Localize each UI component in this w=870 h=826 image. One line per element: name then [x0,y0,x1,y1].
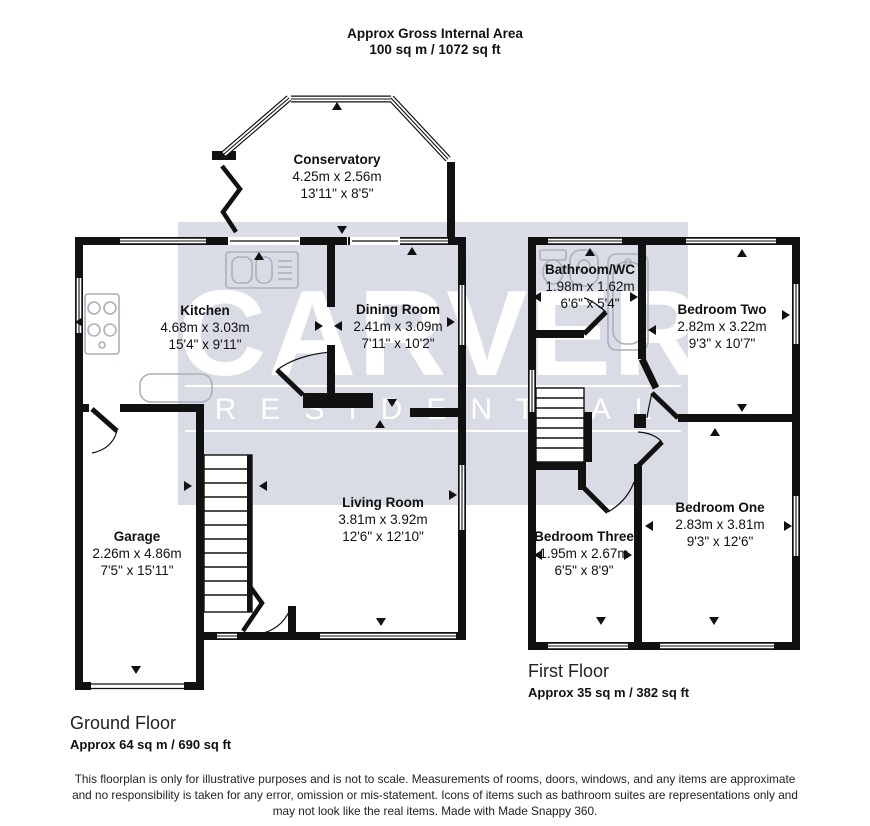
ground-stairs [204,455,252,612]
floorplan-page: Approx Gross Internal Area 100 sq m / 10… [0,0,870,826]
disclaimer-line-1: This floorplan is only for illustrative … [0,772,870,786]
room-imperial: 15'4" x 9'11" [160,336,249,353]
room-name: Conservatory [292,151,381,168]
room-name: Living Room [338,494,427,511]
room-metric: 4.25m x 2.56m [292,168,381,185]
ground-floor-title: Ground Floor [70,713,176,734]
room-label-conservatory: Conservatory 4.25m x 2.56m 13'11" x 8'5" [292,151,381,202]
room-label-bedroom-two: Bedroom Two 2.82m x 3.22m 9'3" x 10'7" [677,301,766,352]
room-metric: 4.68m x 3.03m [160,319,249,336]
room-label-bedroom-three: Bedroom Three 1.95m x 2.67m 6'5" x 8'9" [532,528,636,579]
room-label-kitchen: Kitchen 4.68m x 3.03m 15'4" x 9'11" [160,302,249,353]
room-metric: 2.41m x 3.09m [353,318,442,335]
disclaimer-line-2: and no responsibility is taken for any e… [0,788,870,802]
room-imperial: 9'3" x 12'6" [675,533,764,550]
room-name: Kitchen [160,302,249,319]
room-name: Dining Room [353,301,442,318]
first-floor-title: First Floor [528,661,609,682]
first-floor-area: Approx 35 sq m / 382 sq ft [528,685,689,700]
windows [79,98,796,689]
room-label-dining-room: Dining Room 2.41m x 3.09m 7'11" x 10'2" [353,301,442,352]
room-imperial: 12'6" x 12'10" [338,528,427,545]
floorplan-drawing [0,0,870,826]
room-imperial: 7'5" x 15'11" [92,562,181,579]
ground-floor-area: Approx 64 sq m / 690 sq ft [70,737,231,752]
room-metric: 1.95m x 2.67m [532,545,636,562]
ground-top-openings [228,237,400,245]
room-imperial: 13'11" x 8'5" [292,185,381,202]
room-label-garage: Garage 2.26m x 4.86m 7'5" x 15'11" [92,528,181,579]
room-imperial: 6'5" x 8'9" [532,562,636,579]
disclaimer-line-3: may not look like the real items. Made w… [0,804,870,818]
room-imperial: 9'3" x 10'7" [677,335,766,352]
room-metric: 1.98m x 1.62m [545,278,635,295]
room-label-bathroom-wc: Bathroom/WC 1.98m x 1.62m 6'6" x 5'4" [545,261,635,312]
room-label-living-room: Living Room 3.81m x 3.92m 12'6" x 12'10" [338,494,427,545]
room-metric: 2.83m x 3.81m [675,516,764,533]
room-name: Bathroom/WC [545,261,635,278]
room-metric: 3.81m x 3.92m [338,511,427,528]
room-name: Bedroom One [675,499,764,516]
room-imperial: 6'6" x 5'4" [545,295,635,312]
room-metric: 2.26m x 4.86m [92,545,181,562]
room-name: Bedroom Three [532,528,636,545]
first-floor-stairs [536,388,592,462]
room-name: Bedroom Two [677,301,766,318]
room-imperial: 7'11" x 10'2" [353,335,442,352]
room-name: Garage [92,528,181,545]
direction-markers [75,102,792,674]
ground-floor-walls [75,151,466,690]
room-label-bedroom-one: Bedroom One 2.83m x 3.81m 9'3" x 12'6" [675,499,764,550]
room-metric: 2.82m x 3.22m [677,318,766,335]
